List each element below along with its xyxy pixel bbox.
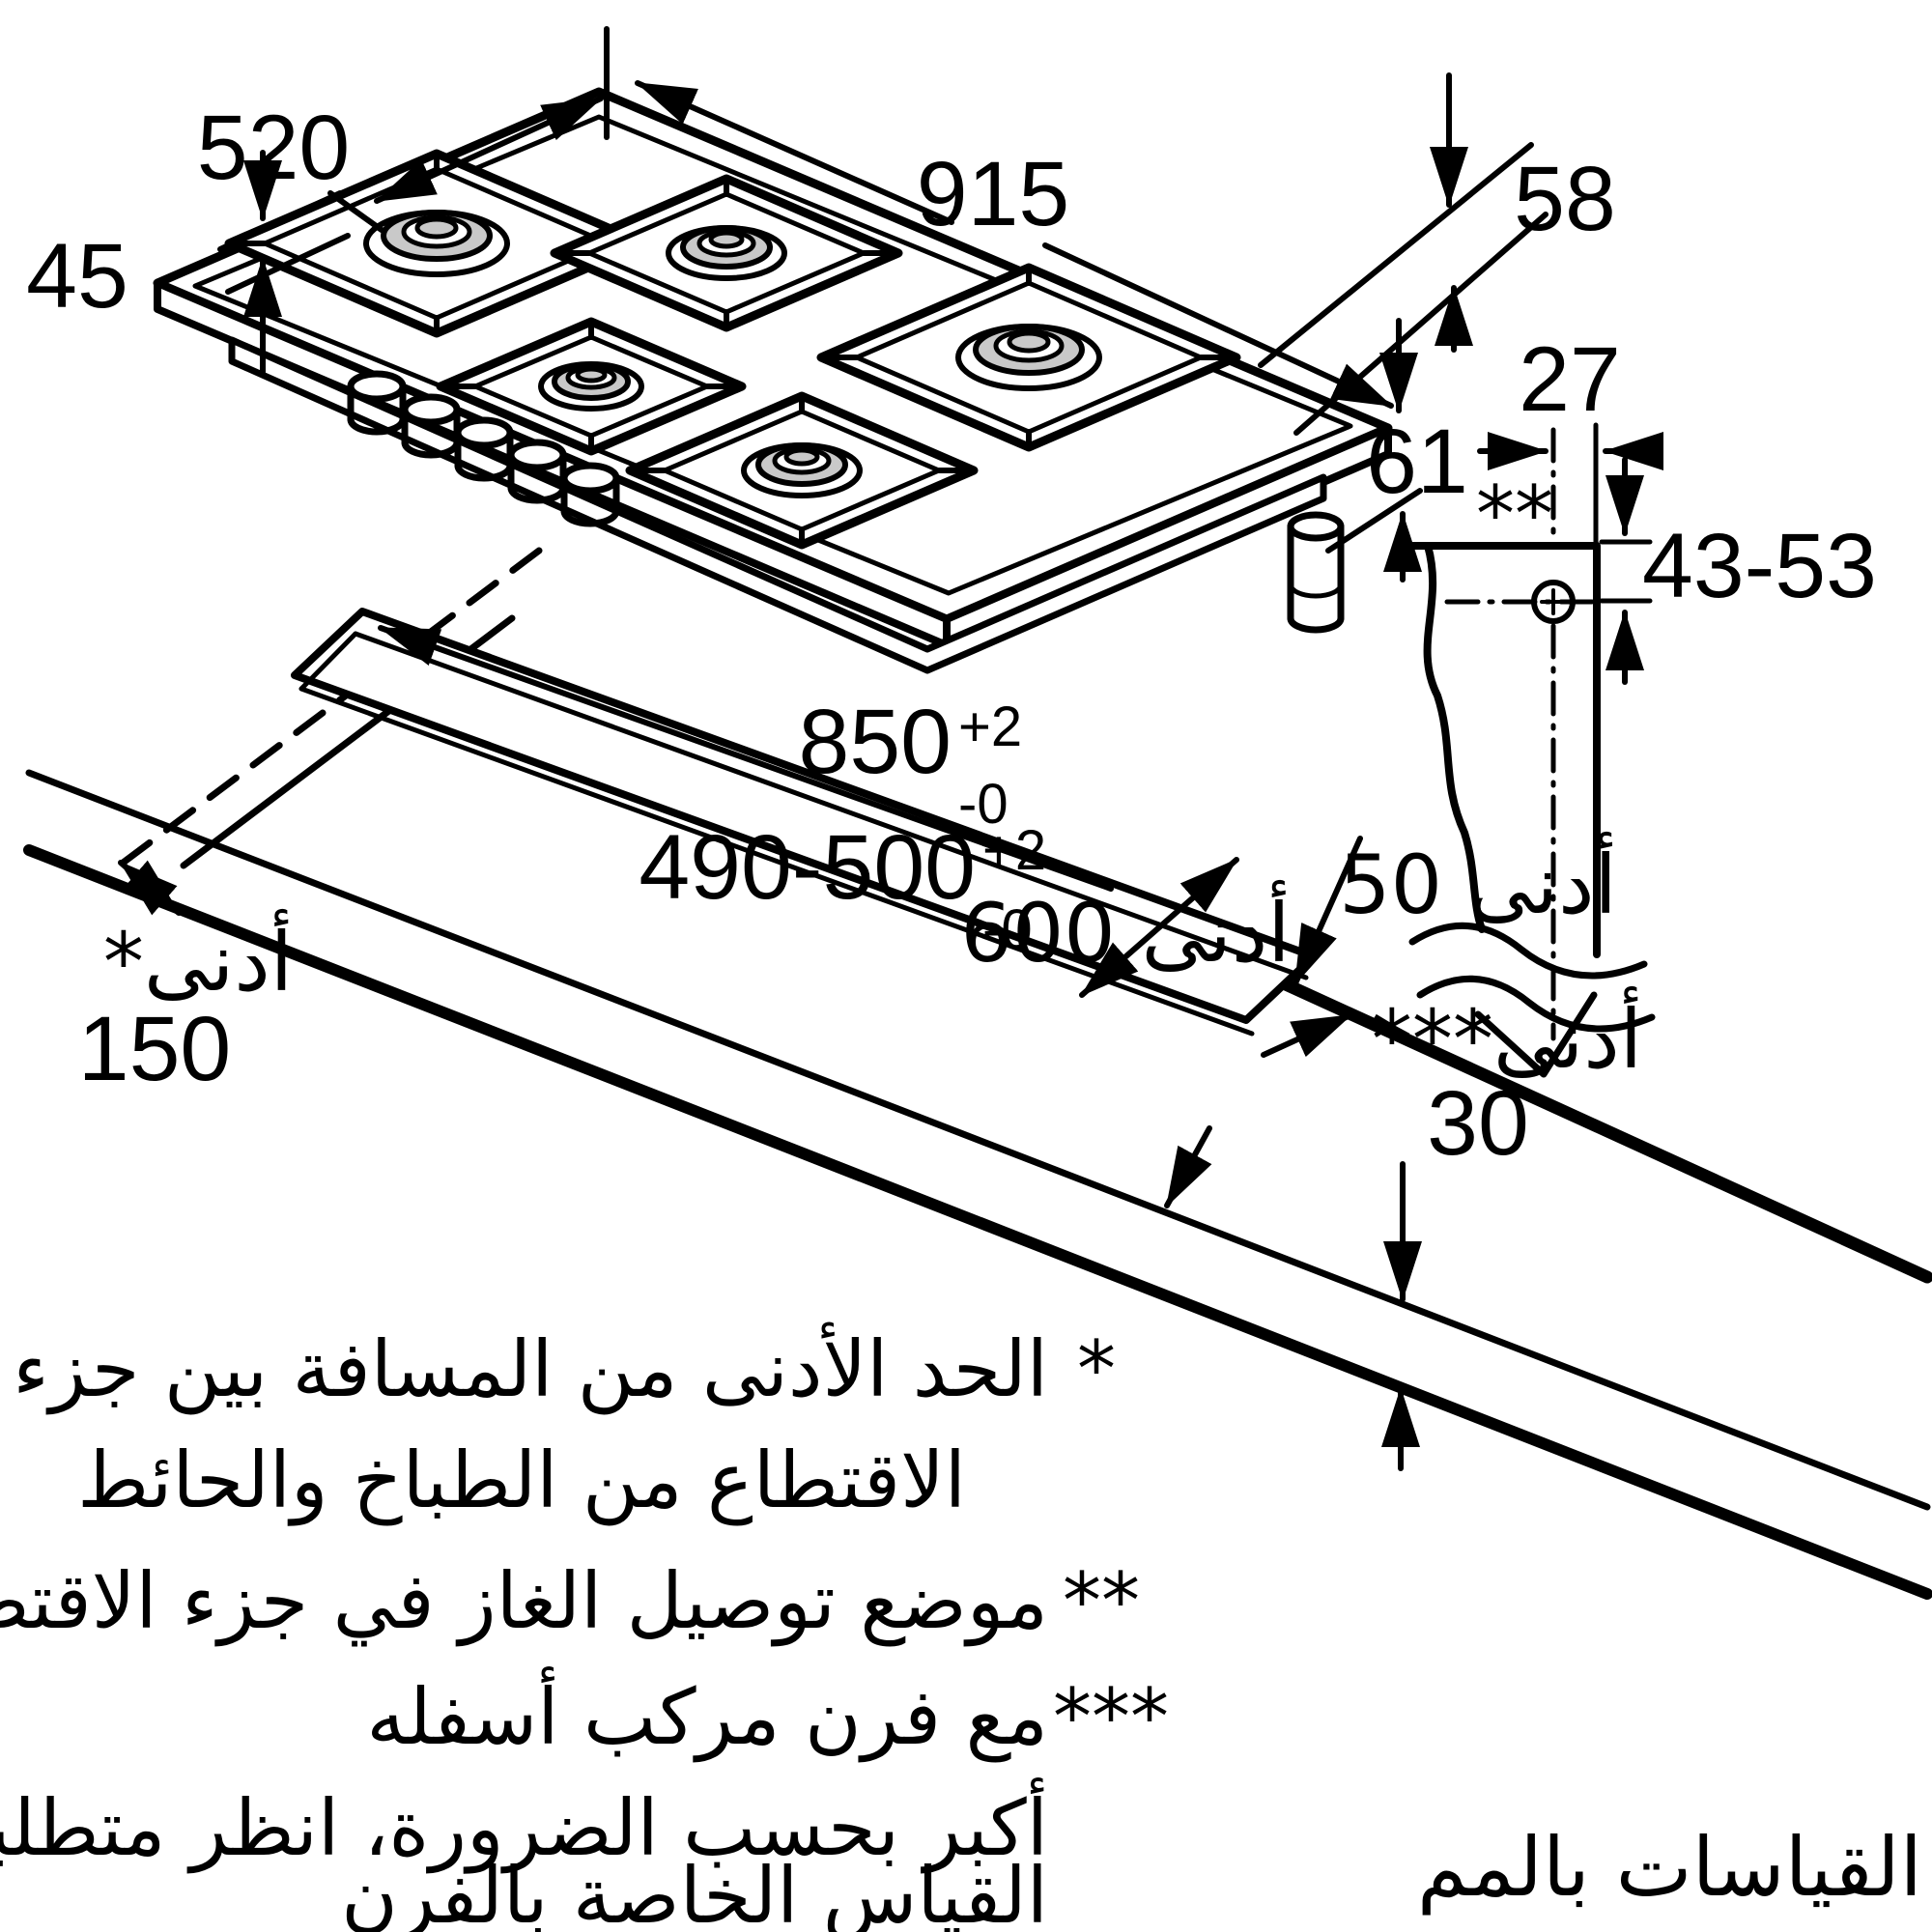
gas-marker-label: ** [1476, 469, 1553, 559]
cutout-width-tol-plus: +2 [958, 696, 1022, 758]
footnote-marker-1: * [1077, 1324, 1116, 1414]
min-right-label: أدنى 50 [1339, 832, 1617, 932]
dim-width-label: 915 [917, 143, 1070, 245]
dim-gas-offset-label: 27 [1519, 328, 1621, 431]
footnotes: * الحد الأدنى من المسافة بين جزء الاقتطا… [0, 1321, 1922, 1932]
burner-icon [958, 327, 1099, 388]
cutout-depth-tol-plus: +2 [982, 819, 1046, 882]
min-front-arrow-lower [1167, 1128, 1209, 1206]
min-wall-label: *أدنى [103, 909, 293, 1009]
burner-icon [744, 445, 860, 496]
dim-total-height-label: 61 [1366, 411, 1468, 513]
dim-glass-height-label: 45 [26, 225, 128, 327]
burner-icon [668, 228, 784, 278]
break-line-upper [1412, 925, 1644, 976]
dim-body-height-label: 58 [1514, 148, 1616, 250]
cutout-width-label: 850 [798, 691, 952, 793]
footnote-marker-2: ** [1063, 1556, 1140, 1646]
units-note: القياسات بالمم [1417, 1820, 1922, 1916]
cutout-depth-label: 490-500 [639, 816, 976, 919]
dim-gas-height-label: 43-53 [1642, 515, 1877, 617]
dim-depth-label: 520 [197, 97, 351, 199]
footnote-line-3: موضع توصيل الغاز في جزء الاقتطاع [0, 1556, 1048, 1647]
burner-icon [541, 364, 641, 409]
footnote-line-6: القياس الخاصة بالفرن [341, 1851, 1048, 1932]
footnote-line-4: مع فرن مركب أسفله [366, 1666, 1048, 1763]
gas-pipe-icon [1291, 515, 1341, 630]
min-front-label: أدنى 600 [960, 880, 1290, 980]
hob-illustration [157, 29, 1546, 670]
burner-icon [366, 213, 507, 274]
diagram-canvas: 520 45 915 58 61 27 ** 43-53 850 +2 -0 4… [0, 0, 1932, 1932]
footnote-marker-3: *** [1053, 1672, 1169, 1762]
min-wall-value: 150 [78, 998, 232, 1100]
min-front-arrow-upper [1264, 1015, 1350, 1055]
min-oven-value: 30 [1427, 1072, 1529, 1175]
hob-installation-diagram: 520 45 915 58 61 27 ** 43-53 850 +2 -0 4… [0, 0, 1932, 1932]
footnote-line-1: الحد الأدنى من المسافة بين جزء [13, 1321, 1048, 1415]
footnote-line-2: الاقتطاع من الطباخ والحائط [77, 1435, 966, 1526]
